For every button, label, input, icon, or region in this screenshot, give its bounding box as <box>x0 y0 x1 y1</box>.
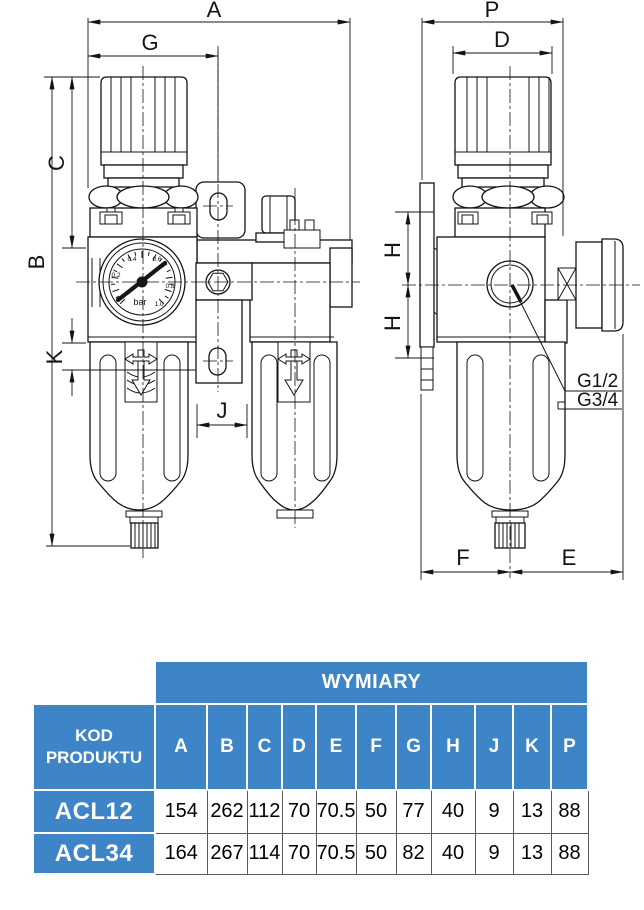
acl34-H: 40 <box>431 833 475 874</box>
dim-label-A: A <box>207 0 222 22</box>
table-row-acl12: ACL12 154 262 112 70 70.5 50 77 40 9 13 … <box>33 790 588 833</box>
acl12-B: 262 <box>207 790 247 833</box>
table-header-wymiary: WYMIARY <box>155 661 588 704</box>
dim-label-E: E <box>562 545 577 570</box>
acl12-K: 13 <box>513 790 551 833</box>
dimensions-table: WYMIARY KOD PRODUKTU A B C D E F G H J K… <box>32 660 589 875</box>
gauge-tick-08: 0.8 <box>165 283 174 290</box>
front-connector-block <box>196 263 252 300</box>
col-header-P: P <box>551 704 588 790</box>
acl12-G: 77 <box>396 790 431 833</box>
col-header-H: H <box>431 704 475 790</box>
thread-label-g34: G3/4 <box>577 390 619 411</box>
side-view: G1/2 G3/4 P D H <box>380 0 640 580</box>
acl12-J: 9 <box>475 790 513 833</box>
col-header-B: B <box>207 704 247 790</box>
col-header-G: G <box>396 704 431 790</box>
acl34-D: 70 <box>282 833 316 874</box>
filter-bowl <box>90 342 188 548</box>
dim-label-H-lower: H <box>380 315 405 331</box>
col-header-J: J <box>475 704 513 790</box>
side-bowl <box>457 342 565 548</box>
gauge-tick-06: 0.6 <box>152 256 161 263</box>
page: 0.2 0.4 0.6 0.8 1.0 bar <box>0 0 644 910</box>
dim-label-B: B <box>24 255 49 270</box>
acl34-B: 267 <box>207 833 247 874</box>
acl12-F: 50 <box>356 790 396 833</box>
col-header-A: A <box>155 704 207 790</box>
acl12-H: 40 <box>431 790 475 833</box>
col-header-F: F <box>356 704 396 790</box>
gauge-tick-04: 0.4 <box>127 256 136 263</box>
lubricator-bowl <box>252 342 337 518</box>
col-header-C: C <box>247 704 282 790</box>
acl12-E: 70.5 <box>316 790 356 833</box>
table-row-acl34: ACL34 164 267 114 70 70.5 50 82 40 9 13 … <box>33 833 588 874</box>
gauge-unit-label: bar <box>133 297 146 307</box>
front-lock-nut <box>89 186 198 208</box>
front-regulator-knob <box>101 77 187 187</box>
dim-label-H-upper: H <box>380 242 405 258</box>
acl34-J: 9 <box>475 833 513 874</box>
front-view: 0.2 0.4 0.6 0.8 1.0 bar <box>24 0 360 558</box>
dim-label-J: J <box>217 398 228 423</box>
gauge-tick-02: 0.2 <box>111 272 120 279</box>
front-lubricator-top <box>256 196 320 248</box>
acl34-F: 50 <box>356 833 396 874</box>
col-header-K: K <box>513 704 551 790</box>
dim-label-G: G <box>141 30 158 55</box>
side-regulator-knob <box>455 77 551 187</box>
dim-label-D: D <box>494 27 510 52</box>
acl12-C: 112 <box>247 790 282 833</box>
dim-label-P: P <box>485 0 500 22</box>
front-bracket-bottom <box>196 300 242 383</box>
acl34-C: 114 <box>247 833 282 874</box>
dim-label-F: F <box>456 545 469 570</box>
acl34-A: 164 <box>155 833 207 874</box>
col-header-E: E <box>316 704 356 790</box>
side-lock-nut <box>453 186 564 208</box>
product-code-acl34: ACL34 <box>33 833 155 874</box>
technical-drawing: 0.2 0.4 0.6 0.8 1.0 bar <box>0 0 644 620</box>
thread-label-g12: G1/2 <box>577 371 618 392</box>
acl34-K: 13 <box>513 833 551 874</box>
col-header-D: D <box>282 704 316 790</box>
acl12-A: 154 <box>155 790 207 833</box>
acl12-P: 88 <box>551 790 588 833</box>
product-code-acl12: ACL12 <box>33 790 155 833</box>
front-bracket-top <box>196 182 245 238</box>
acl12-D: 70 <box>282 790 316 833</box>
table-spacer-cell <box>33 661 155 704</box>
gauge-tick-10: 1.0 <box>154 301 163 308</box>
acl34-P: 88 <box>551 833 588 874</box>
acl34-E: 70.5 <box>316 833 356 874</box>
acl34-G: 82 <box>396 833 431 874</box>
dim-label-C: C <box>44 155 69 171</box>
dim-label-K: K <box>42 349 67 364</box>
table-header-kod-produktu: KOD PRODUKTU <box>33 704 155 790</box>
